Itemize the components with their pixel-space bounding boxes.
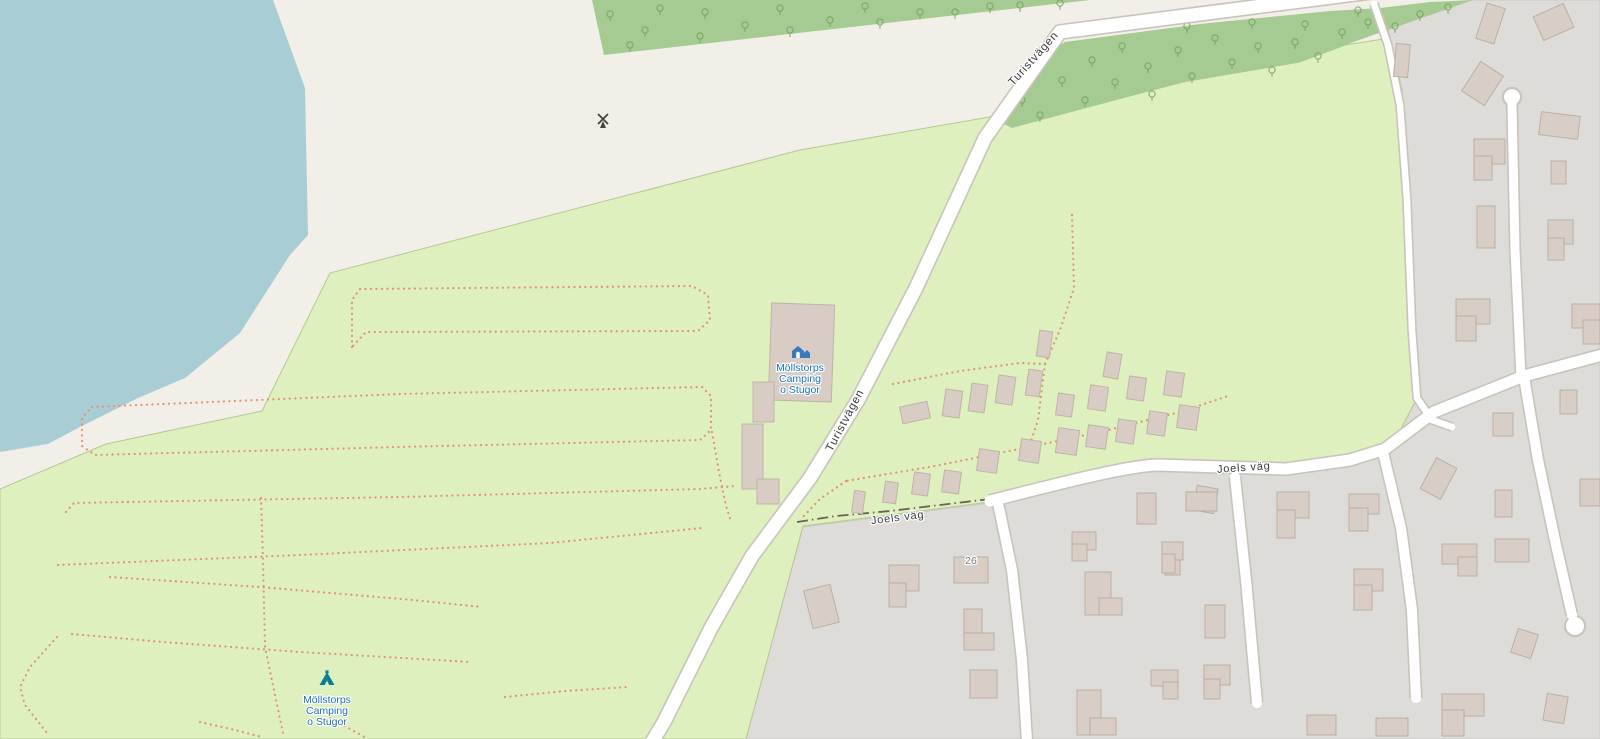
cabin-building	[1176, 405, 1199, 431]
cabin-building	[912, 472, 931, 496]
house-building	[1543, 693, 1568, 723]
poi-label-line: o Stugor	[780, 384, 820, 396]
house-building	[889, 583, 906, 607]
house-building	[1442, 710, 1464, 736]
housenumber-label: 26	[965, 555, 977, 567]
map-canvas[interactable]: TuristvägenTuristvägenJoels vägJoels väg…	[0, 0, 1600, 739]
house-building	[1205, 605, 1225, 638]
cabin-building	[1056, 393, 1075, 417]
house-building	[1163, 682, 1178, 699]
cabin-building	[883, 481, 899, 504]
house-building	[970, 670, 997, 698]
house-building	[1456, 316, 1476, 341]
house-building	[1099, 598, 1122, 615]
house-building	[964, 633, 994, 650]
cabin-building	[942, 389, 963, 418]
map-viewport[interactable]: TuristvägenTuristvägenJoels vägJoels väg…	[0, 0, 1600, 739]
house-building	[1458, 557, 1477, 576]
house-building	[1090, 718, 1116, 735]
cabin-building	[995, 375, 1016, 405]
cabin-building	[1055, 428, 1079, 456]
house-building	[1186, 492, 1217, 511]
house-building	[1495, 490, 1512, 517]
house-building	[1548, 238, 1564, 260]
house-building	[1162, 554, 1175, 573]
cabin-building	[1146, 411, 1167, 436]
cabin-building	[1115, 419, 1136, 444]
cabin-building	[1025, 369, 1042, 397]
house-building	[1394, 43, 1411, 77]
house-building	[1072, 544, 1087, 561]
house-building	[1307, 715, 1336, 735]
cabin-building	[1126, 376, 1146, 401]
house-building	[1477, 206, 1495, 248]
cabin-building	[1163, 371, 1184, 397]
house-building	[1277, 510, 1295, 538]
house-building	[1493, 413, 1513, 436]
cabin-building	[942, 470, 962, 494]
cabin-building	[753, 382, 774, 422]
house-building	[1495, 539, 1529, 562]
cabin-building	[757, 479, 779, 504]
house-building	[1204, 679, 1220, 699]
house-building	[1354, 585, 1372, 610]
cabin-building	[1087, 385, 1108, 411]
cul-de-sac-fill	[1504, 89, 1520, 105]
house-building	[1137, 493, 1156, 524]
cabin-building	[1019, 439, 1042, 464]
house-building	[1583, 320, 1600, 344]
cul-de-sac-fill	[1566, 617, 1584, 635]
house-building	[1580, 479, 1600, 506]
house-building	[1376, 718, 1408, 736]
house-building	[1551, 161, 1566, 184]
house-building	[1474, 156, 1492, 180]
house-building	[1560, 390, 1577, 414]
house-building	[1349, 508, 1368, 531]
house-building	[1539, 112, 1581, 140]
cabin-building	[1086, 425, 1109, 450]
cabin-building	[977, 449, 1000, 474]
poi-label-line: o Stugor	[307, 716, 347, 728]
cabin-building	[968, 383, 988, 413]
cabin-building	[852, 490, 866, 513]
